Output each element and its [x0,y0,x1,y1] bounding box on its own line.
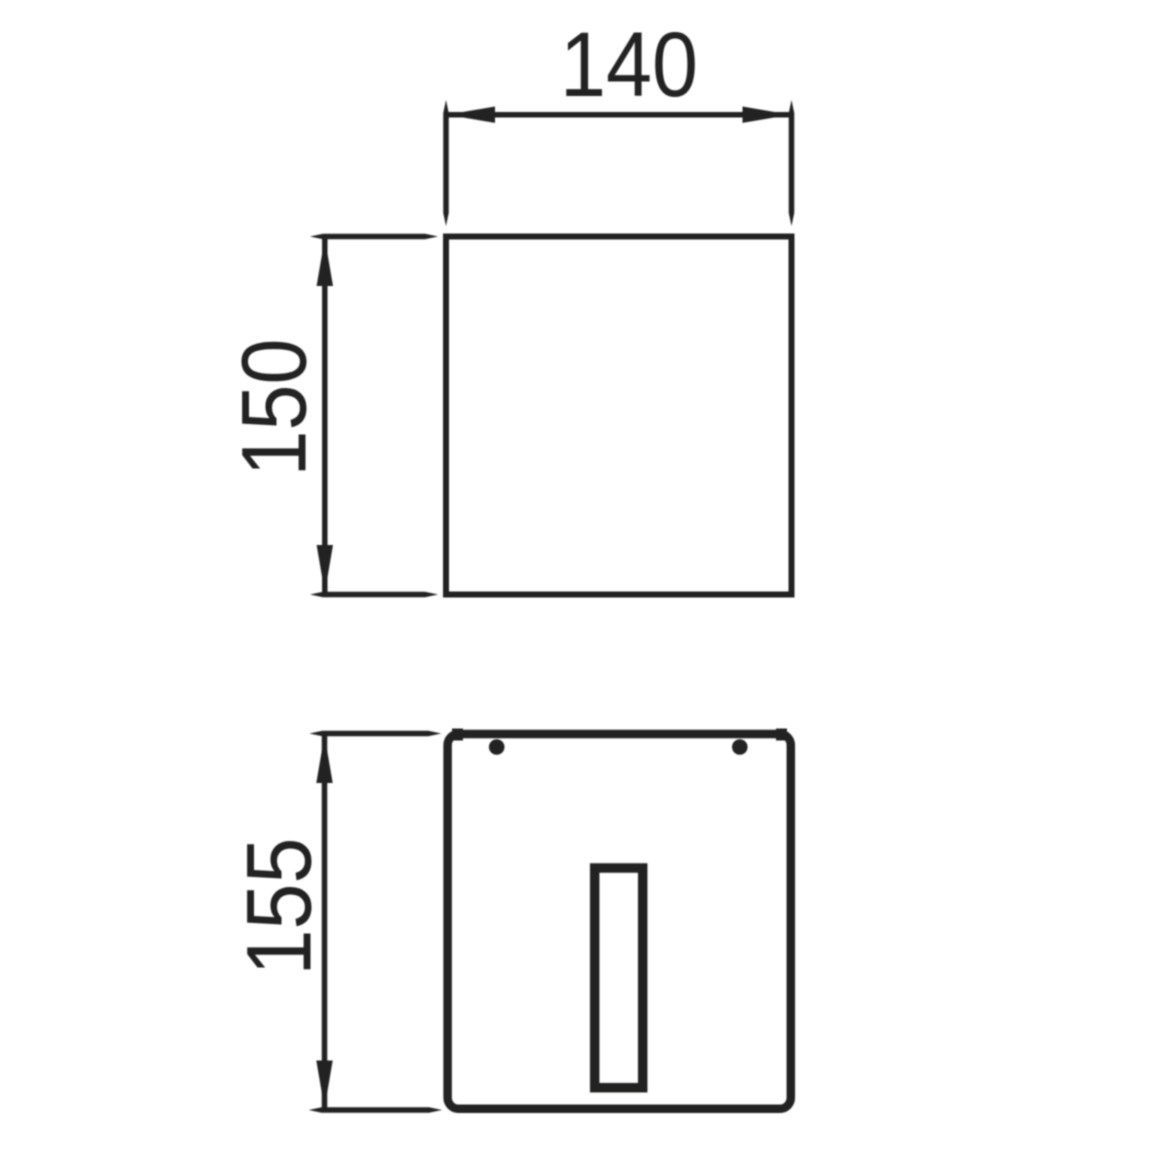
svg-text:155: 155 [229,838,331,976]
svg-text:150: 150 [224,339,326,477]
svg-text:140: 140 [560,14,698,116]
